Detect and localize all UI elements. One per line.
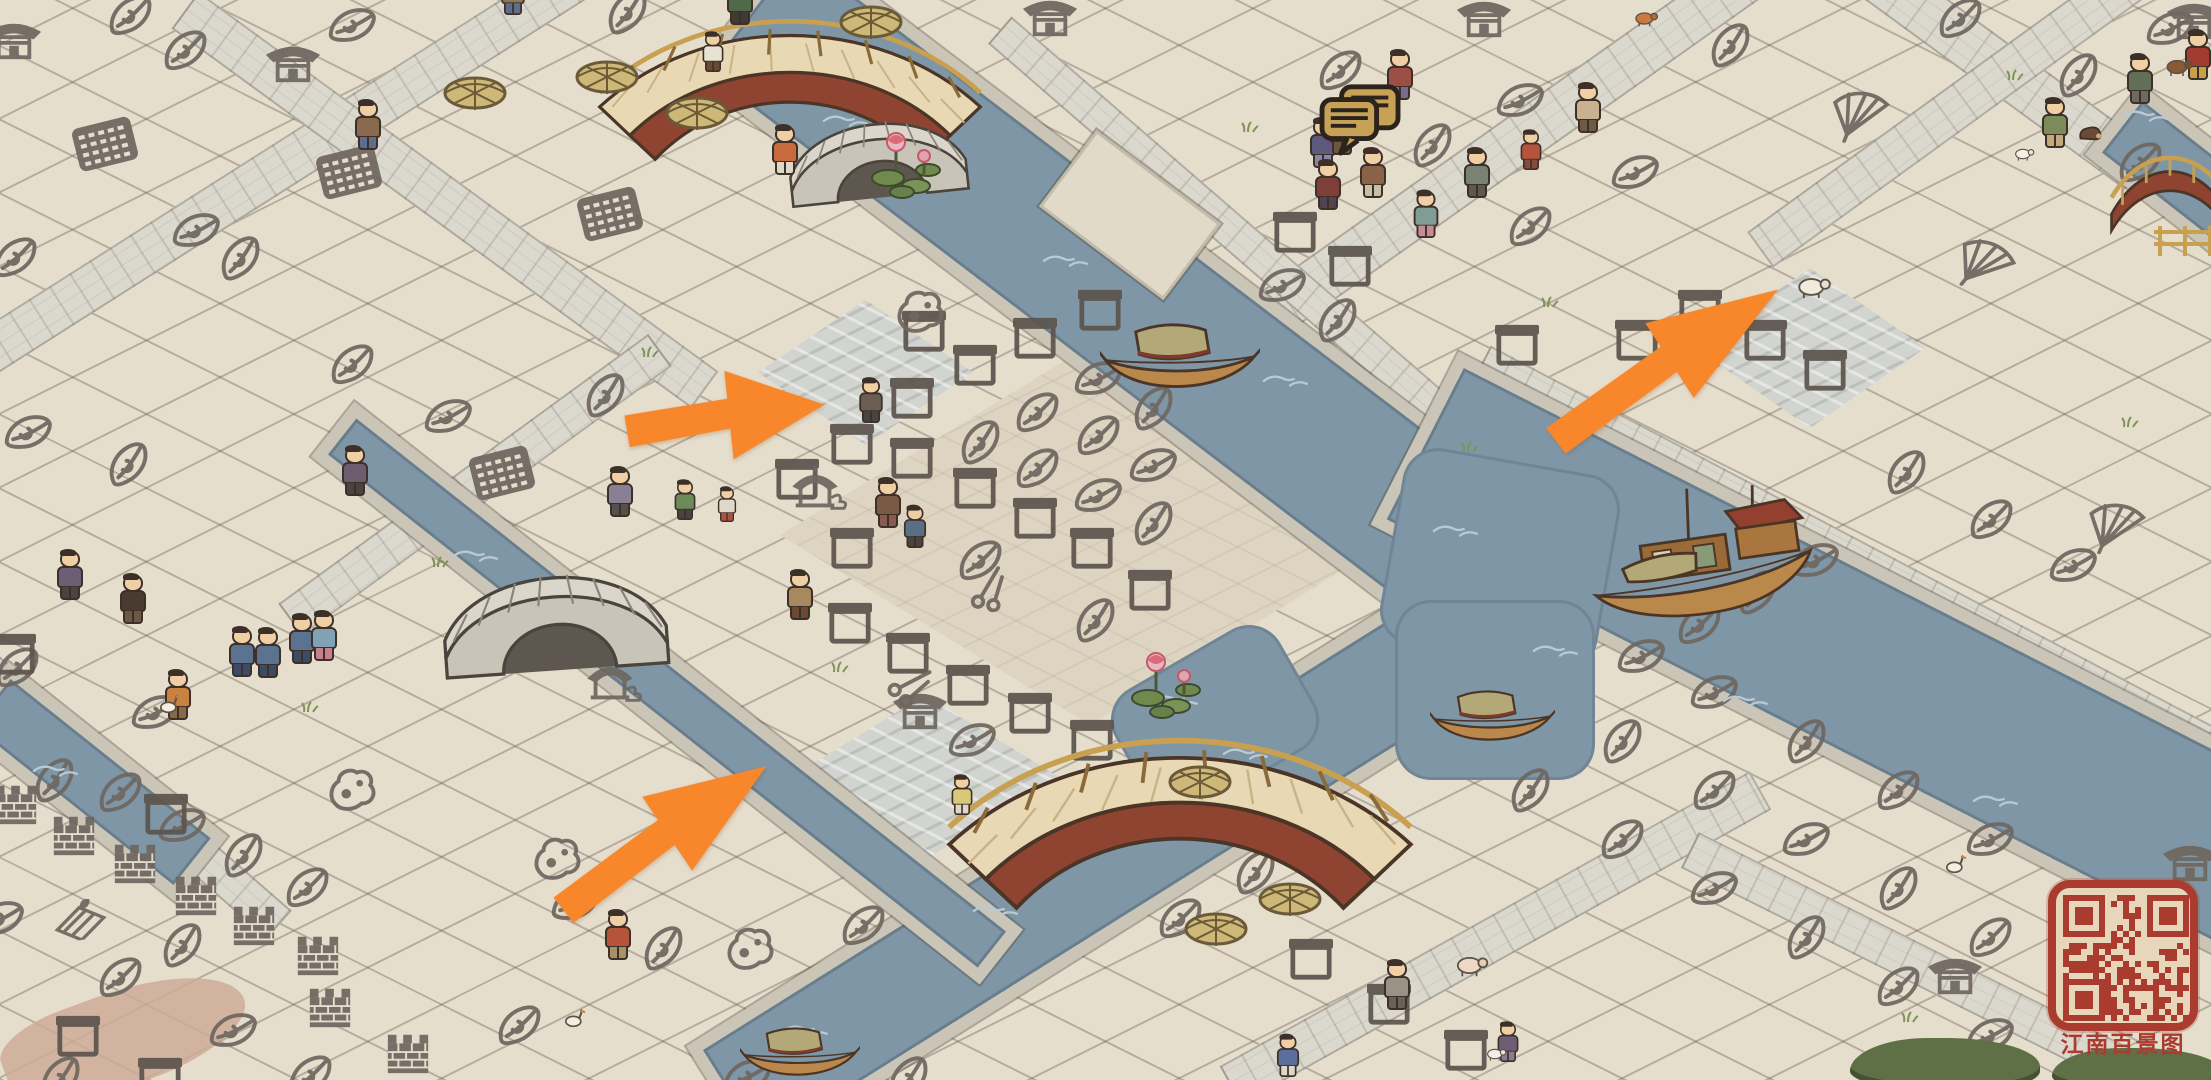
sheep: [1796, 274, 1834, 300]
villager[interactable]: [2125, 54, 2155, 104]
bird: [564, 1008, 586, 1028]
leaf-icon[interactable]: [1612, 632, 1670, 679]
leaf-icon[interactable]: [1777, 815, 1835, 862]
grass-tuft: [1900, 1010, 1920, 1024]
fox: [1634, 9, 1660, 28]
villager-head: [314, 611, 334, 629]
leaf-icon[interactable]: [1491, 76, 1549, 123]
qr-code: [2048, 880, 2198, 1031]
house-icon[interactable]: [1927, 952, 1983, 998]
grass-tuft: [2005, 68, 2025, 82]
leaf-icon[interactable]: [1685, 864, 1743, 911]
villager-head: [123, 574, 143, 592]
wall-icon[interactable]: [229, 901, 279, 949]
covered-sampan-boat[interactable]: [740, 1020, 860, 1080]
leaf-icon[interactable]: [0, 408, 57, 455]
red-foot-bridge[interactable]: [2105, 130, 2211, 235]
rock-icon[interactable]: [724, 923, 776, 971]
game-map-viewport[interactable]: 江南百景图: [0, 0, 2211, 1080]
parasol-umbrella: [442, 73, 508, 119]
villager[interactable]: [770, 125, 800, 175]
villager[interactable]: [873, 478, 903, 528]
fan-icon[interactable]: [1825, 76, 1899, 145]
stall-icon[interactable]: [0, 632, 37, 676]
rock-icon[interactable]: [894, 286, 946, 334]
wall-icon[interactable]: [171, 871, 221, 919]
villager[interactable]: [309, 611, 339, 661]
pig: [1455, 953, 1491, 978]
qr-watermark: 江南百景图: [2048, 880, 2198, 1061]
villager-head: [878, 478, 898, 496]
water-wave: [1532, 641, 1588, 659]
villager[interactable]: [902, 506, 928, 549]
stone-arch-bridge[interactable]: [402, 495, 704, 700]
stall-icon[interactable]: [143, 792, 189, 836]
tutorial-arrow: [620, 352, 830, 477]
leaf-icon[interactable]: [1961, 815, 2019, 862]
grass-tuft: [640, 345, 660, 359]
dog: [2165, 56, 2195, 78]
villager[interactable]: [673, 480, 697, 520]
villager[interactable]: [253, 628, 283, 678]
parasol-umbrella: [574, 57, 640, 103]
wall-icon[interactable]: [49, 811, 99, 859]
villager[interactable]: [500, 0, 527, 15]
villager-head: [1467, 148, 1487, 166]
qr-caption: 江南百景图: [2048, 1032, 2198, 1057]
house-icon[interactable]: [1456, 0, 1512, 41]
water-wave: [1042, 251, 1098, 269]
stall-icon[interactable]: [952, 343, 998, 387]
grass-tuft: [830, 660, 850, 674]
villager[interactable]: [725, 0, 755, 25]
water-wave: [2122, 106, 2178, 124]
parasol-umbrella: [838, 2, 904, 48]
speech-bubble-icon[interactable]: [1318, 82, 1404, 158]
stall-icon[interactable]: [137, 1056, 183, 1080]
cat: [2014, 146, 2036, 162]
stall-icon[interactable]: [1069, 526, 1115, 570]
villager-head: [1578, 83, 1598, 101]
hedgehog: [2077, 123, 2103, 142]
house-icon[interactable]: [0, 17, 42, 63]
water-wave: [1262, 371, 1318, 389]
duck: [159, 694, 181, 714]
pavilion-icon[interactable]: [783, 463, 847, 517]
stall-icon[interactable]: [1443, 1028, 1489, 1072]
grass-tuft: [2120, 415, 2140, 429]
water-wave: [1432, 521, 1488, 539]
leaf-icon[interactable]: [1069, 471, 1127, 518]
wooden-arch-bridge[interactable]: [930, 690, 1430, 970]
stall-icon[interactable]: [1327, 244, 1373, 288]
villager-head: [2045, 98, 2065, 116]
villager-head: [1523, 130, 1539, 144]
grass-tuft: [1460, 440, 1480, 454]
lotus-flowers: [858, 130, 953, 200]
villager-head: [345, 446, 365, 464]
rock-icon[interactable]: [326, 764, 378, 812]
covered-sampan-boat[interactable]: [1430, 680, 1555, 750]
grass-tuft: [1540, 295, 1560, 309]
lotus-flowers: [1118, 650, 1213, 720]
villager-head: [258, 628, 278, 646]
villager-head: [1318, 160, 1338, 178]
fan-icon[interactable]: [2082, 489, 2154, 556]
villager[interactable]: [1412, 191, 1441, 239]
grass-tuft: [1240, 120, 1260, 134]
villager-head: [720, 487, 734, 500]
villager[interactable]: [858, 378, 885, 423]
villager-head: [1500, 1022, 1516, 1036]
parasol-umbrella: [664, 93, 730, 139]
villager-head: [232, 627, 252, 645]
villager[interactable]: [1573, 83, 1603, 133]
leaf-icon[interactable]: [204, 1006, 262, 1053]
villager-head: [1387, 960, 1407, 978]
stall-icon[interactable]: [1012, 316, 1058, 360]
villager-head: [168, 670, 188, 688]
stall-icon[interactable]: [1127, 568, 1173, 612]
villager[interactable]: [950, 775, 974, 815]
stall-icon[interactable]: [889, 436, 935, 480]
villager-head: [862, 378, 880, 394]
villager-head: [790, 570, 810, 588]
villager-head: [2188, 30, 2208, 48]
villager-head: [1417, 191, 1436, 208]
stall-icon[interactable]: [1802, 348, 1848, 392]
villager-head: [907, 506, 924, 521]
villager-head: [775, 125, 795, 143]
stall-icon[interactable]: [55, 1014, 101, 1058]
villager-head: [677, 480, 693, 494]
goose: [1945, 854, 1967, 874]
stall-icon[interactable]: [829, 526, 875, 570]
stall-icon[interactable]: [1272, 210, 1318, 254]
villager-head: [1280, 1035, 1297, 1050]
wall-icon[interactable]: [110, 839, 160, 887]
grass-tuft: [300, 700, 320, 714]
villager-head: [358, 100, 378, 118]
villager[interactable]: [353, 100, 383, 150]
villager[interactable]: [118, 574, 148, 624]
villager[interactable]: [1313, 160, 1343, 210]
villager[interactable]: [717, 487, 738, 522]
fan-icon[interactable]: [1950, 225, 2025, 296]
stall-icon[interactable]: [1012, 496, 1058, 540]
house-icon[interactable]: [265, 40, 321, 86]
villager[interactable]: [701, 32, 725, 72]
house-icon[interactable]: [1022, 0, 1078, 40]
water-wave: [32, 761, 88, 779]
villager[interactable]: [1462, 148, 1492, 198]
villager-head: [2130, 54, 2150, 72]
cat: [1486, 1046, 1508, 1062]
villager-head: [610, 467, 630, 485]
stall-icon[interactable]: [1494, 323, 1540, 367]
leaf-icon[interactable]: [323, 1, 381, 48]
water-wave: [1972, 791, 2028, 809]
villager-head: [60, 550, 80, 568]
villager[interactable]: [1519, 130, 1543, 170]
wall-icon[interactable]: [293, 931, 343, 979]
wall-icon[interactable]: [383, 1029, 433, 1077]
leaf-icon[interactable]: [1124, 441, 1182, 488]
villager-head: [954, 775, 970, 789]
stall-icon[interactable]: [827, 601, 873, 645]
parasol-umbrella: [1167, 762, 1233, 808]
parasol-umbrella: [1257, 879, 1323, 925]
leaf-icon[interactable]: [1606, 148, 1664, 195]
leaf-icon[interactable]: [419, 392, 477, 439]
villager[interactable]: [1382, 960, 1412, 1010]
house-icon[interactable]: [2162, 839, 2211, 885]
stall-icon[interactable]: [889, 376, 935, 420]
villager[interactable]: [785, 570, 815, 620]
stall-icon[interactable]: [952, 466, 998, 510]
villager[interactable]: [55, 550, 85, 600]
villager[interactable]: [340, 446, 370, 496]
villager[interactable]: [1275, 1035, 1301, 1078]
villager-head: [1390, 50, 1410, 68]
field-icon[interactable]: [48, 896, 113, 944]
leaf-icon[interactable]: [1253, 261, 1311, 308]
leaf-icon[interactable]: [0, 894, 29, 941]
villager[interactable]: [2040, 98, 2070, 148]
covered-sampan-boat[interactable]: [1100, 315, 1260, 395]
wall-icon[interactable]: [0, 780, 41, 828]
villager-head: [705, 32, 721, 46]
wooden-fence: [2150, 222, 2211, 260]
water-wave: [1722, 691, 1778, 709]
large-cargo-boat[interactable]: [1580, 480, 1820, 620]
wall-icon[interactable]: [305, 983, 355, 1031]
stall-icon[interactable]: [829, 422, 875, 466]
parasol-umbrella: [1183, 909, 1249, 955]
